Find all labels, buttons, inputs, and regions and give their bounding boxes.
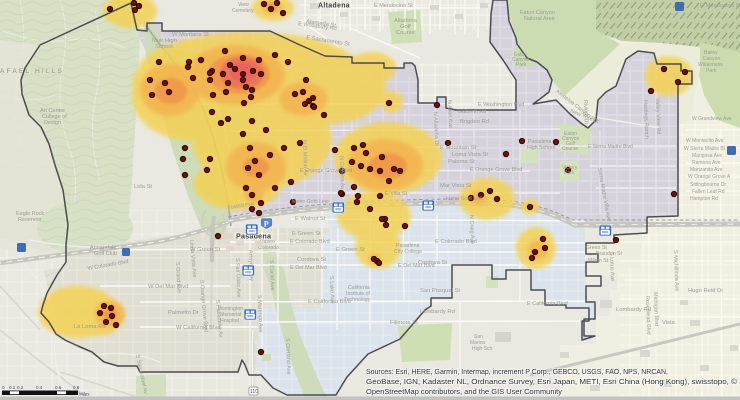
svg-text:Natural Area: Natural Area <box>524 16 556 22</box>
svg-text:N Catalina Av: N Catalina Av <box>338 156 345 190</box>
svg-text:Lida St: Lida St <box>134 184 152 190</box>
svg-text:City College: City College <box>394 249 422 255</box>
svg-text:Mar Vista St: Mar Vista St <box>440 183 472 189</box>
svg-text:0.6: 0.6 <box>55 385 62 390</box>
svg-text:Hugo Reid Dr: Hugo Reid Dr <box>688 288 723 294</box>
svg-text:Park: Park <box>564 170 575 176</box>
svg-text:La Loma Rd: La Loma Rd <box>74 324 106 330</box>
svg-text:W Green St: W Green St <box>190 247 221 253</box>
svg-text:Altadena: Altadena <box>318 3 350 10</box>
svg-text:0.2: 0.2 <box>17 385 24 390</box>
svg-text:W Sierra Madre Bl: W Sierra Madre Bl <box>684 146 725 152</box>
svg-text:Paloma St: Paloma St <box>448 159 475 165</box>
svg-text:Riviera Dr: Riviera Dr <box>582 100 589 125</box>
svg-text:E Villa St: E Villa St <box>385 191 408 197</box>
svg-text:Manzanita Ave: Manzanita Ave <box>690 167 723 173</box>
svg-text:N Allen Ave: N Allen Ave <box>446 100 453 128</box>
svg-text:Sittingbourne Dr: Sittingbourne Dr <box>690 182 726 188</box>
svg-text:S Lake Ave: S Lake Ave <box>328 276 335 304</box>
svg-text:Valley View Rd: Valley View Rd <box>654 98 661 135</box>
svg-text:Cemetery: Cemetery <box>232 8 254 14</box>
svg-text:Cordova St: Cordova St <box>297 257 326 263</box>
svg-text:Park: Park <box>516 62 527 68</box>
svg-text:Hospital: Hospital <box>220 318 239 324</box>
svg-text:E Walnut St: E Walnut St <box>295 216 326 222</box>
svg-text:N El Molino Av: N El Molino Av <box>301 140 308 176</box>
svg-text:Milton St: Milton St <box>588 258 609 264</box>
svg-text:Galbreth Rd: Galbreth Rd <box>458 109 486 115</box>
svg-text:High Sch: High Sch <box>472 346 493 352</box>
svg-text:E Mendocino St: E Mendocino St <box>374 3 413 9</box>
svg-text:S Lotus Ave: S Lotus Ave <box>608 252 615 281</box>
svg-text:GeoBase, IGN, Kadaster NL, Ord: GeoBase, IGN, Kadaster NL, Ordnance Surv… <box>366 377 737 386</box>
svg-text:0.8: 0.8 <box>73 385 80 390</box>
svg-text:Miles: Miles <box>79 392 90 397</box>
svg-text:Ramona Ave: Ramona Ave <box>692 160 721 166</box>
svg-text:E Colorado Blvd: E Colorado Blvd <box>290 239 330 245</box>
svg-text:Fillmore St: Fillmore St <box>390 320 418 326</box>
svg-text:W Montana St: W Montana St <box>172 32 209 38</box>
svg-text:E Mendocino St: E Mendocino St <box>700 3 740 9</box>
svg-text:S Euclid Ave: S Euclid Ave <box>268 260 275 291</box>
svg-text:OpenStreetMap contributors, an: OpenStreetMap contributors, and the GIS … <box>366 387 562 396</box>
svg-text:E Del Mar Blvd: E Del Mar Blvd <box>290 265 327 271</box>
svg-text:E Washington Blvd: E Washington Blvd <box>478 102 524 108</box>
svg-text:P: P <box>264 220 269 229</box>
svg-text:E Green St: E Green St <box>292 231 321 237</box>
svg-text:Loma Vista St: Loma Vista St <box>452 152 488 158</box>
svg-text:W Grandview Ave: W Grandview Ave <box>692 116 732 122</box>
svg-text:AFAEL HILLS: AFAEL HILLS <box>0 68 64 75</box>
svg-text:Park: Park <box>706 68 717 74</box>
svg-text:Technology: Technology <box>344 297 371 303</box>
svg-text:Palmetto Dr: Palmetto Dr <box>168 310 199 316</box>
svg-text:N Altadena Dr: N Altadena Dr <box>432 112 439 147</box>
svg-text:Vista: Vista <box>662 320 676 326</box>
svg-text:E Mountain St: E Mountain St <box>440 145 477 151</box>
svg-text:San Pasqual St: San Pasqual St <box>420 288 460 294</box>
svg-text:0.4: 0.4 <box>36 385 43 390</box>
svg-text:W Orange Grove A: W Orange Grove A <box>688 174 731 180</box>
svg-text:Fallen Leaf Rd: Fallen Leaf Rd <box>692 189 725 195</box>
svg-text:Reservoir: Reservoir <box>18 217 42 223</box>
svg-text:Sources: Esri, HERE, Garmin, I: Sources: Esri, HERE, Garmin, Intermap, i… <box>366 367 668 376</box>
svg-text:Course: Course <box>396 30 415 36</box>
svg-text:E Del Mar Blvd: E Del Mar Blvd <box>398 263 435 269</box>
svg-text:Course: Course <box>562 146 578 152</box>
svg-text:W Montecito Ave: W Montecito Ave <box>686 138 724 144</box>
svg-text:Michigan Blvd: Michigan Blvd <box>652 292 659 326</box>
svg-text:0.1: 0.1 <box>9 385 16 390</box>
svg-text:Metro Gold Line: Metro Gold Line <box>446 195 483 202</box>
svg-text:W California Blvd: W California Blvd <box>176 325 220 331</box>
svg-text:N Craig Ave: N Craig Ave <box>468 215 475 244</box>
svg-text:S Cortland Ave: S Cortland Ave <box>284 338 291 375</box>
svg-text:Brigden Rd: Brigden Rd <box>460 119 489 125</box>
svg-text:E California Blvd: E California Blvd <box>527 301 568 307</box>
svg-text:Design: Design <box>44 120 61 126</box>
svg-text:E Sierra Madre Blvd: E Sierra Madre Blvd <box>588 144 633 150</box>
svg-text:Hampton Rd: Hampton Rd <box>690 196 718 202</box>
svg-text:Golf Club: Golf Club <box>94 251 117 257</box>
svg-text:E Orange Grove Blvd: E Orange Grove Blvd <box>470 167 522 173</box>
svg-text:110: 110 <box>250 389 258 395</box>
svg-text:Lombardy Rd: Lombardy Rd <box>420 309 455 315</box>
svg-text:School: School <box>155 44 173 50</box>
svg-text:Metro Gold Line: Metro Gold Line <box>292 199 329 205</box>
svg-text:E Green St: E Green St <box>336 247 365 253</box>
svg-text:High School: High School <box>527 145 555 151</box>
svg-text:Mariposa Ave: Mariposa Ave <box>692 153 722 159</box>
